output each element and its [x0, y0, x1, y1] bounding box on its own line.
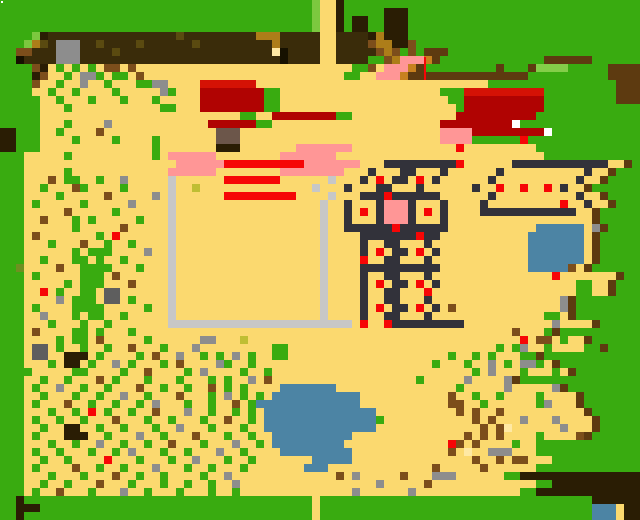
game-map-viewport [0, 0, 640, 520]
pixel-map-canvas[interactable] [0, 0, 640, 520]
red-sliver [424, 57, 426, 80]
white-dot [1, 1, 3, 3]
